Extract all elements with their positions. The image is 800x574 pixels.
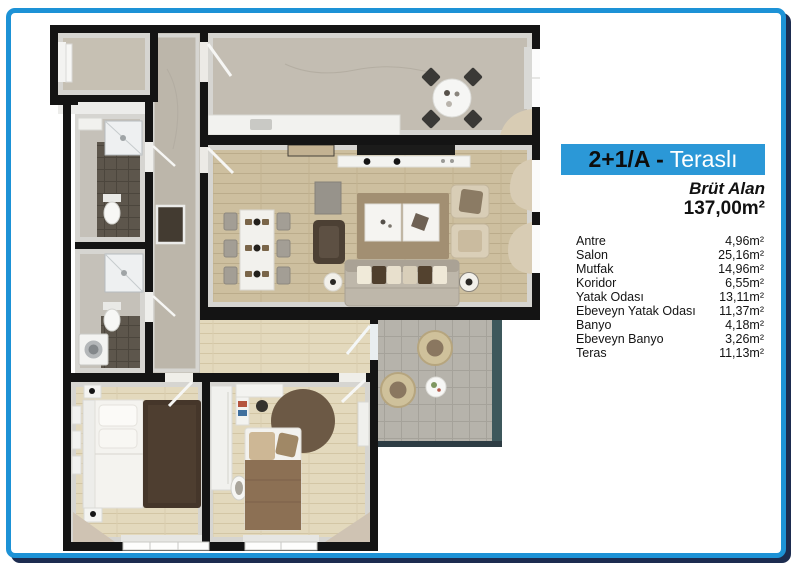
tv bbox=[357, 145, 455, 155]
room-area: 4,18m² bbox=[725, 318, 764, 332]
terrace-glass-rail-bottom bbox=[376, 441, 502, 447]
room-area: 11,13m² bbox=[719, 346, 764, 360]
desk bbox=[236, 384, 283, 397]
floor-hall bbox=[200, 320, 370, 373]
plan-variant-label: Teraslı bbox=[670, 144, 738, 175]
room-row: Koridor 6,55m² bbox=[576, 276, 764, 290]
entry-door bbox=[58, 42, 66, 82]
toilet bbox=[104, 309, 120, 331]
room-row: Banyo 4,18m² bbox=[576, 318, 764, 332]
dresser bbox=[358, 402, 369, 446]
vanity bbox=[78, 118, 102, 130]
gross-area-caption: Brüt Alan bbox=[561, 179, 765, 199]
headboard bbox=[83, 400, 95, 508]
gross-area-value: 137,00m² bbox=[561, 198, 765, 220]
toilet bbox=[104, 202, 120, 224]
room-row: Yatak Odası 13,11m² bbox=[576, 290, 764, 304]
floor-plan bbox=[45, 14, 545, 559]
room-area: 11,37m² bbox=[719, 304, 764, 318]
room-area: 3,26m² bbox=[725, 332, 764, 346]
plan-type-label: 2+1/A - bbox=[589, 144, 664, 175]
terrace-glass-rail-right bbox=[492, 320, 502, 447]
storage-cabinet bbox=[315, 182, 341, 214]
room-row: Ebeveyn Yatak Odası 11,37m² bbox=[576, 304, 764, 318]
room-row: Antre 4,96m² bbox=[576, 234, 764, 248]
room-row: Ebeveyn Banyo 3,26m² bbox=[576, 332, 764, 346]
room-name: Banyo bbox=[576, 318, 611, 332]
duvet bbox=[245, 460, 301, 530]
room-row: Teras 11,13m² bbox=[576, 346, 764, 360]
kitchen-door bbox=[200, 42, 208, 82]
room-name: Salon bbox=[576, 248, 608, 262]
room-name: Yatak Odası bbox=[576, 290, 644, 304]
bedroom2-door bbox=[339, 373, 366, 382]
lamp bbox=[90, 511, 96, 517]
kitchen-sink bbox=[250, 119, 272, 130]
room-row: Salon 25,16m² bbox=[576, 248, 764, 262]
salon-door bbox=[200, 147, 208, 173]
terrace-door bbox=[370, 324, 378, 360]
room-area: 4,96m² bbox=[725, 234, 764, 248]
room-area: 13,11m² bbox=[719, 290, 764, 304]
room-name: Ebeveyn Banyo bbox=[576, 332, 664, 346]
room-area-list: Antre 4,96m² Salon 25,16m² Mutfak 14,96m… bbox=[576, 234, 764, 360]
plan-card-frame: 2+1/A - Teraslı Brüt Alan 137,00m² Antre… bbox=[6, 8, 786, 558]
master-bedroom-door bbox=[165, 373, 193, 382]
desk-chair bbox=[256, 400, 268, 412]
plan-title-banner: 2+1/A - Teraslı bbox=[561, 144, 765, 175]
room-name: Ebeveyn Yatak Odası bbox=[576, 304, 696, 318]
ebeveyn-banyo-door bbox=[145, 292, 153, 322]
kitchen-counter bbox=[208, 115, 400, 135]
room-row: Mutfak 14,96m² bbox=[576, 262, 764, 276]
wall-picture bbox=[288, 145, 334, 156]
room-name: Koridor bbox=[576, 276, 616, 290]
salon-window bbox=[532, 160, 540, 212]
wardrobe bbox=[211, 386, 232, 490]
room-name: Mutfak bbox=[576, 262, 614, 276]
hall-mirror bbox=[157, 206, 184, 243]
round-dining-table bbox=[433, 79, 471, 117]
master-window bbox=[123, 542, 209, 550]
room-area: 25,16m² bbox=[718, 248, 764, 262]
room-area: 14,96m² bbox=[718, 262, 764, 276]
room-name: Teras bbox=[576, 346, 607, 360]
banyo-door bbox=[145, 142, 153, 172]
room-area: 6,55m² bbox=[725, 276, 764, 290]
salon-window bbox=[532, 225, 540, 273]
lamp bbox=[89, 388, 95, 394]
room-name: Antre bbox=[576, 234, 606, 248]
